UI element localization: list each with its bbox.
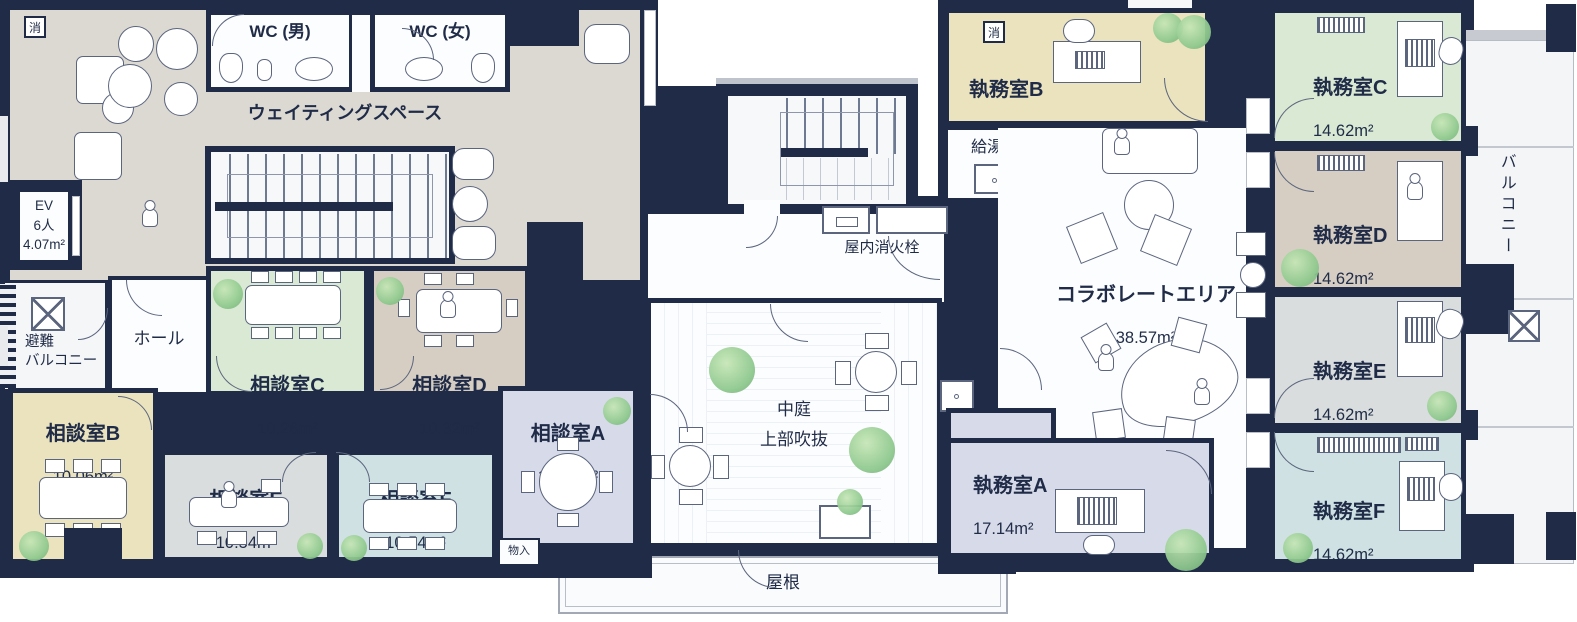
room-area: 14.62m² — [1313, 546, 1374, 564]
chair — [425, 537, 445, 550]
chair — [506, 299, 518, 317]
shelf-icon — [1317, 437, 1401, 453]
plant-icon — [1165, 529, 1207, 571]
plant-icon — [1283, 533, 1313, 563]
plant-icon — [849, 427, 895, 473]
plant-icon — [709, 347, 755, 393]
plant-icon — [376, 277, 404, 305]
elevator: EV 6人 4.07m² — [18, 190, 70, 262]
sink-icon — [405, 57, 443, 81]
meeting-table — [39, 477, 127, 519]
room-name: 相談室B — [46, 423, 120, 445]
toilet-icon — [219, 53, 243, 83]
office-e-label: 執務室E 14.62m² — [1313, 339, 1386, 427]
hall-label: ホール — [112, 328, 206, 350]
room-area: 10.32m² — [419, 420, 480, 438]
chair — [251, 271, 269, 283]
chair — [521, 471, 535, 493]
monitor-icon — [1075, 51, 1105, 69]
fire-extinguisher-icon: 消 — [24, 16, 46, 38]
door-gap — [1246, 98, 1270, 134]
room-area: 14.62m² — [1313, 122, 1374, 140]
desk — [1397, 161, 1443, 241]
sink-drain — [992, 178, 997, 183]
chair — [835, 361, 851, 385]
consult-room-a: 相談室A 12.93m² — [498, 386, 638, 548]
chair — [299, 271, 317, 283]
chair — [275, 271, 293, 283]
room-name: コラボレートエリア — [1056, 284, 1236, 306]
escape-hatch-icon — [31, 297, 65, 331]
room-area: 14.62m² — [1313, 406, 1374, 424]
plant-icon — [297, 533, 323, 559]
wall — [64, 528, 122, 564]
wc-vestibule — [352, 10, 372, 92]
round-table — [539, 453, 597, 511]
chair — [557, 437, 579, 451]
sink-drain — [954, 394, 959, 399]
door-gap — [1246, 152, 1270, 188]
chair — [369, 537, 389, 550]
chair — [323, 327, 341, 339]
office-d-label: 執務室D 14.62m² — [1313, 203, 1387, 291]
desk-chair — [1063, 19, 1095, 43]
chair — [398, 299, 410, 317]
wall — [505, 8, 579, 46]
room-name: 執務室A — [973, 475, 1047, 497]
room-area: 14.62m² — [1313, 270, 1374, 288]
entrance-door — [644, 10, 656, 106]
cushion — [1236, 232, 1266, 256]
round-table — [855, 351, 897, 393]
chair — [865, 333, 889, 349]
plant-icon — [1427, 391, 1457, 421]
desk-chair — [584, 24, 630, 64]
stairs-main — [205, 146, 455, 264]
lounge-chair — [164, 82, 198, 116]
plant-icon — [603, 397, 631, 425]
person-icon — [1407, 181, 1423, 200]
chair — [45, 523, 65, 537]
side-table — [1240, 262, 1266, 288]
chair — [424, 273, 442, 285]
chair — [452, 226, 496, 260]
room-name: 相談室D — [412, 375, 486, 397]
monitor-icon — [1405, 39, 1435, 67]
person-icon — [221, 489, 237, 508]
cushion — [1092, 408, 1126, 442]
meeting-table — [189, 497, 289, 527]
chair — [275, 327, 293, 339]
chair — [261, 479, 281, 493]
elevator-label: EV 6人 4.07m² — [20, 196, 68, 255]
chair — [227, 531, 247, 545]
door-gap — [1246, 432, 1270, 468]
chair — [599, 471, 613, 493]
wc-women: WC (女) — [370, 10, 510, 92]
chair — [257, 531, 277, 545]
wall — [1546, 512, 1576, 560]
chair — [197, 531, 217, 545]
hydrant-closet — [876, 206, 948, 234]
plant-icon — [837, 489, 863, 515]
chair — [101, 459, 121, 473]
chair — [369, 483, 389, 496]
wall — [1460, 514, 1514, 564]
urinal-icon — [257, 59, 272, 81]
office-b: 執務室B 17.08m² 消 — [944, 8, 1210, 126]
floor-plan: 屋根 バルコニー ウェイティングスペース 消 WC (男) WC (女) — [0, 0, 1577, 622]
storage: 物入 — [498, 538, 540, 566]
meeting-table — [245, 285, 341, 325]
storage-label: 物入 — [500, 544, 538, 558]
chair — [865, 395, 889, 411]
wall — [1546, 4, 1576, 52]
fire-extinguisher-icon: 消 — [983, 21, 1005, 43]
plant-icon — [1177, 15, 1211, 49]
room-name: 執務室D — [1313, 225, 1387, 247]
chair — [45, 459, 65, 473]
chair — [456, 335, 474, 347]
stair-door-gap — [744, 200, 780, 214]
plant-icon — [1431, 113, 1459, 141]
plant-icon — [1281, 249, 1319, 287]
window-strip — [0, 326, 8, 366]
chair — [651, 455, 665, 479]
wall — [527, 222, 583, 282]
meeting-table — [363, 499, 457, 533]
chair — [679, 489, 703, 505]
chair — [323, 271, 341, 283]
plant-icon — [213, 279, 243, 309]
door-gap — [1246, 378, 1270, 414]
shelf-icon — [1405, 437, 1439, 451]
chair — [557, 513, 579, 527]
chair — [397, 483, 417, 496]
room-area: 10.26m² — [257, 420, 318, 438]
lounge-chair — [118, 26, 154, 62]
sink-icon — [295, 57, 333, 81]
monitor-icon — [1077, 497, 1117, 525]
shelf-icon — [1317, 155, 1365, 171]
chair — [424, 335, 442, 347]
stairs-middle — [728, 96, 906, 204]
meeting-table — [416, 289, 502, 333]
lounge-chair — [108, 64, 152, 108]
room-name: 執務室B — [969, 79, 1043, 101]
person-icon — [440, 299, 456, 318]
chair — [73, 459, 93, 473]
evacuation-hatch-icon — [1508, 310, 1540, 342]
side-table — [452, 186, 488, 222]
window-strip — [0, 116, 8, 182]
chair — [452, 148, 494, 180]
wc-women-label: WC (女) — [375, 21, 505, 43]
fire-hydrant-inner — [836, 217, 858, 227]
armchair — [74, 132, 122, 180]
room-name: 執務室E — [1313, 361, 1386, 383]
plant-icon — [19, 531, 49, 561]
chair — [299, 327, 317, 339]
round-table — [669, 445, 711, 487]
office-c-label: 執務室C 14.62m² — [1313, 55, 1387, 143]
person-icon — [1194, 386, 1210, 405]
collaborate-label: コラボレートエリア 38.57m² — [1048, 262, 1244, 350]
person-icon — [1114, 136, 1130, 155]
chair — [251, 327, 269, 339]
elevator-door — [72, 196, 80, 256]
desk-chair — [1439, 473, 1463, 501]
shelf-icon — [1317, 17, 1365, 33]
fire-hydrant-box — [822, 206, 870, 234]
lounge-chair — [156, 28, 198, 70]
chair — [901, 361, 917, 385]
desk-chair — [1083, 535, 1115, 555]
person-icon — [1098, 352, 1114, 371]
office-a-label: 執務室A 17.14m² — [973, 453, 1047, 541]
monitor-icon — [1405, 317, 1435, 343]
room-name: 執務室F — [1313, 501, 1385, 523]
indoor-hydrant-label: 屋内消火栓 — [812, 238, 952, 258]
toilet-icon — [471, 53, 495, 83]
chair — [397, 537, 417, 550]
room-name: 相談室C — [250, 375, 324, 397]
plant-icon — [341, 535, 367, 561]
office-f-label: 執務室F 14.62m² — [1313, 479, 1385, 567]
stair-rail — [780, 112, 894, 186]
room-area: 17.14m² — [973, 520, 1034, 538]
chair — [456, 273, 474, 285]
waiting-space-label: ウェイティングスペース — [205, 102, 485, 125]
stair-landing-bar — [215, 202, 393, 211]
room-name: 執務室C — [1313, 77, 1387, 99]
person-icon — [142, 208, 158, 227]
monitor-icon — [1407, 477, 1435, 501]
chair — [713, 455, 729, 479]
chair — [425, 483, 445, 496]
cushion — [1236, 292, 1266, 318]
